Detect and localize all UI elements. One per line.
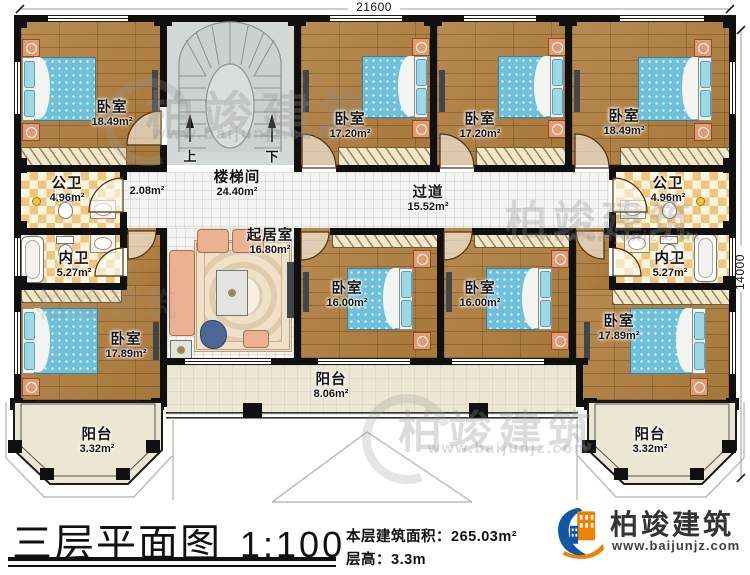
room-area: 17.89m² — [106, 349, 147, 361]
floor-area-value: 265.03m² — [451, 529, 517, 545]
room-area: 5.27m² — [57, 268, 92, 280]
room-name: 阳台 — [633, 428, 668, 444]
room-area: 4.96m² — [651, 193, 686, 205]
room-name: 卧室 — [330, 113, 371, 129]
stair-up-label: 上 — [183, 146, 196, 165]
room-name: 公卫 — [651, 177, 686, 193]
room-area: 24.40m² — [214, 187, 261, 199]
room-name: 卧室 — [92, 101, 133, 117]
room-label-vestibule: 2.08m² — [130, 186, 165, 198]
room-name: 内卫 — [653, 252, 688, 268]
room-area: 4.96m² — [50, 193, 85, 205]
room-label-bedroom-bm2: 卧室 16.00m² — [460, 282, 501, 310]
room-area: 17.89m² — [599, 331, 640, 343]
room-label-stairwell: 楼梯间 24.40m² — [214, 171, 261, 199]
room-label-bedroom-br: 卧室 17.89m² — [599, 315, 640, 343]
room-area: 5.27m² — [653, 268, 688, 280]
room-label-bedroom-t3: 卧室 17.20m² — [460, 113, 501, 141]
room-name: 公卫 — [50, 177, 85, 193]
room-name: 卧室 — [460, 282, 501, 298]
room-label-balcony-right: 阳台 3.32m² — [633, 428, 668, 456]
floor-area-line: 本层建筑面积：265.03m² — [346, 525, 517, 546]
room-label-bedroom-bm1: 卧室 16.00m² — [327, 282, 368, 310]
room-label-private-bath-left: 内卫 5.27m² — [57, 252, 92, 280]
floor-height-value: 3.3m — [391, 552, 426, 568]
room-label-bedroom-tr: 卧室 18.49m² — [604, 110, 645, 138]
room-label-balcony-left: 阳台 3.32m² — [80, 428, 115, 456]
room-area: 16.80m² — [247, 245, 294, 257]
floor-height-line: 层高：3.3m — [346, 548, 426, 569]
room-name: 卧室 — [106, 333, 147, 349]
room-label-public-bath-left: 公卫 4.96m² — [50, 177, 85, 205]
brand-logo-icon — [552, 504, 606, 562]
room-label-bedroom-bl: 卧室 17.89m² — [106, 333, 147, 361]
room-name: 卧室 — [327, 282, 368, 298]
dimension-top: 21600 — [356, 0, 392, 14]
room-label-living-room: 起居室 16.80m² — [247, 229, 294, 257]
room-area: 17.20m² — [330, 129, 371, 141]
room-area: 16.00m² — [327, 298, 368, 310]
room-name: 阳台 — [314, 373, 349, 389]
staircase — [179, 22, 281, 152]
room-area: 3.32m² — [80, 444, 115, 456]
room-label-private-bath-right: 内卫 5.27m² — [653, 252, 688, 280]
title-underline-thin — [8, 565, 336, 567]
room-label-corridor: 过道 15.52m² — [408, 186, 449, 214]
title-underline — [8, 557, 336, 561]
room-label-balcony-center: 阳台 8.06m² — [314, 373, 349, 401]
stair-down-label: 下 — [265, 146, 278, 165]
dimension-right: 14000 — [733, 254, 747, 290]
room-area: 3.32m² — [633, 444, 668, 456]
room-label-bedroom-t2: 卧室 17.20m² — [330, 113, 371, 141]
room-name: 楼梯间 — [214, 171, 261, 187]
room-name: 卧室 — [460, 113, 501, 129]
room-name: 卧室 — [604, 110, 645, 126]
floor-area-label: 本层建筑面积： — [346, 529, 451, 545]
room-name: 卧室 — [599, 315, 640, 331]
room-area: 18.49m² — [92, 117, 133, 129]
room-name: 过道 — [408, 186, 449, 202]
brand-website: www.baijunjz.com — [612, 538, 740, 553]
brand-name: 柏竣建筑 — [610, 503, 734, 543]
floor-height-label: 层高： — [346, 552, 391, 568]
room-area: 18.49m² — [604, 126, 645, 138]
room-label-bedroom-tl: 卧室 18.49m² — [92, 101, 133, 129]
room-area: 8.06m² — [314, 389, 349, 401]
room-label-public-bath-right: 公卫 4.96m² — [651, 177, 686, 205]
room-area: 16.00m² — [460, 298, 501, 310]
room-name: 内卫 — [57, 252, 92, 268]
room-area: 2.08m² — [130, 186, 165, 198]
room-name: 阳台 — [80, 428, 115, 444]
room-area: 17.20m² — [460, 129, 501, 141]
room-area: 15.52m² — [408, 202, 449, 214]
room-name: 起居室 — [247, 229, 294, 245]
floor-plan-sheet: 柏竣建筑 www.baijunjz.com 柏竣建筑 www.baijunjz.… — [0, 0, 750, 575]
